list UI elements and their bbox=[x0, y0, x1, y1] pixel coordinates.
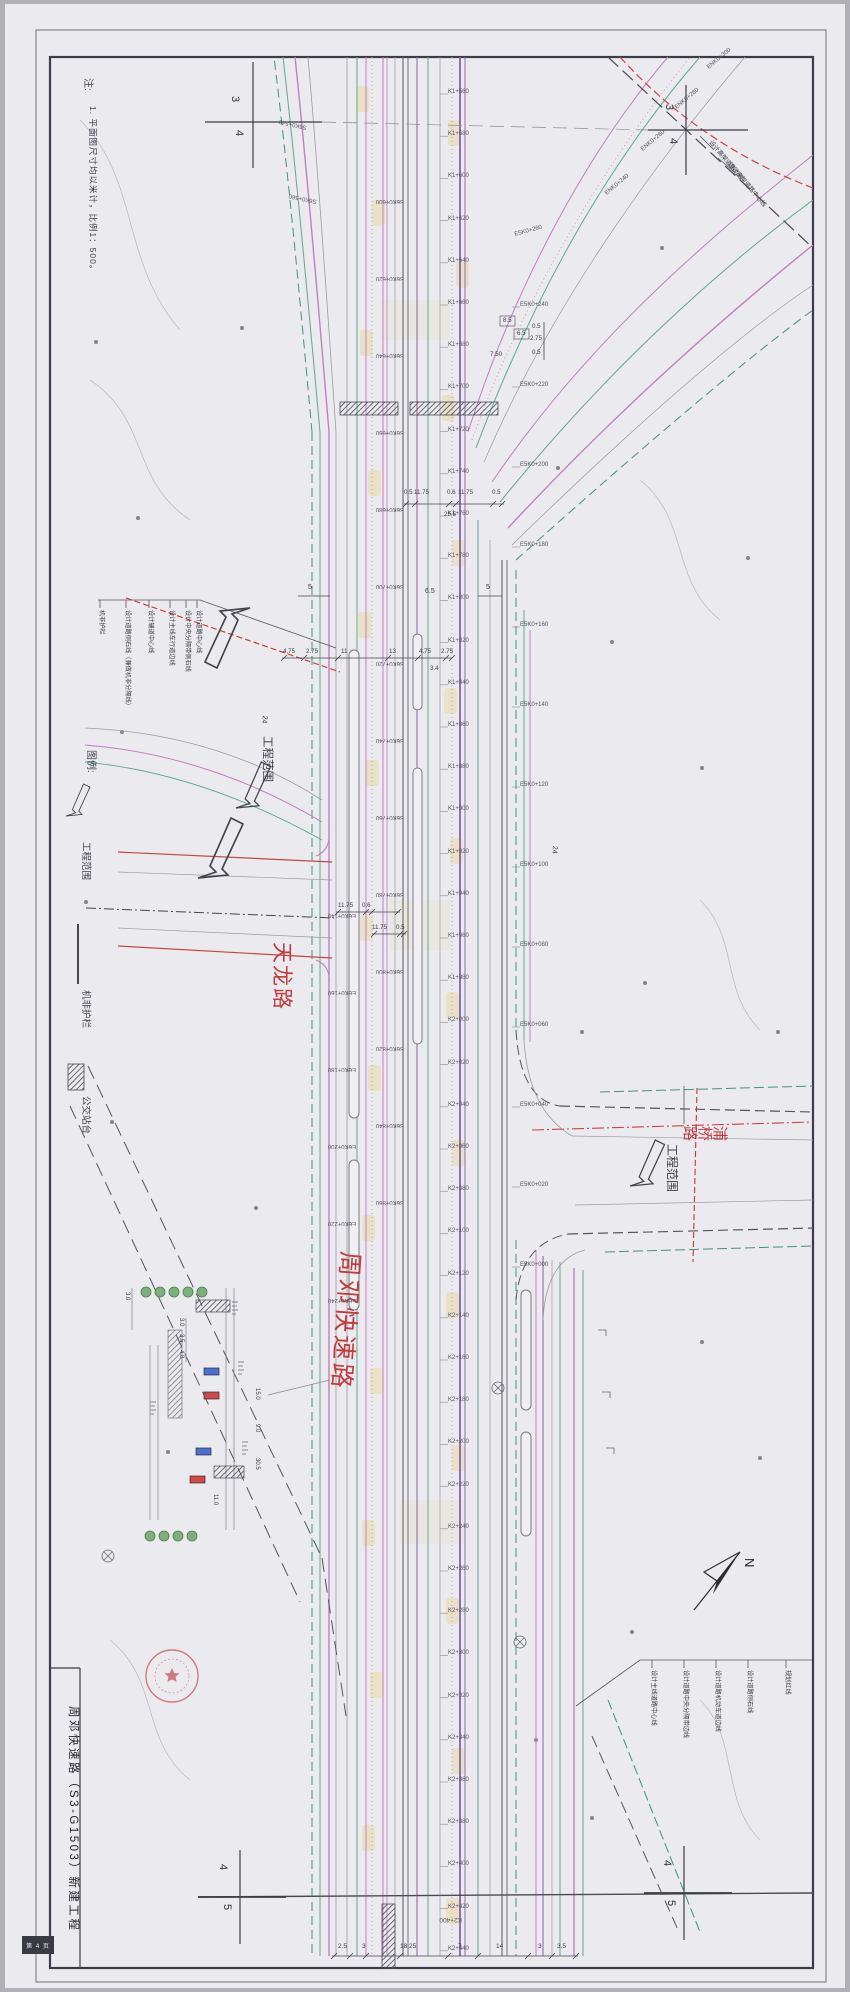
dimension-lines bbox=[281, 316, 579, 1959]
platform-hatch-areas bbox=[68, 402, 498, 1968]
north-compass-icon bbox=[694, 1552, 740, 1610]
boundary-arrows bbox=[66, 608, 665, 1186]
tianlong-road bbox=[85, 728, 334, 984]
legend-platform-hatch-icon bbox=[68, 1064, 84, 1090]
planned-road-dashed bbox=[70, 1066, 346, 1716]
legend-boundary-arrow-icon bbox=[66, 784, 90, 816]
generated-ticks bbox=[440, 94, 520, 1951]
scanned-drawing-sheet: 注: 1. 平面图尺寸均以米计，比例1：500。 图例: 工程范围 机非护栏 公… bbox=[0, 0, 850, 1992]
seal-stamp bbox=[146, 1650, 198, 1702]
ramp-curves bbox=[468, 57, 813, 560]
match-lines bbox=[198, 57, 813, 1944]
bus-stop-detail bbox=[132, 1287, 330, 1541]
plan-linework bbox=[0, 0, 850, 1992]
mainline-top-left-curves bbox=[274, 57, 336, 432]
puqiao-road bbox=[516, 1030, 813, 1320]
survey-dots bbox=[84, 246, 780, 1820]
